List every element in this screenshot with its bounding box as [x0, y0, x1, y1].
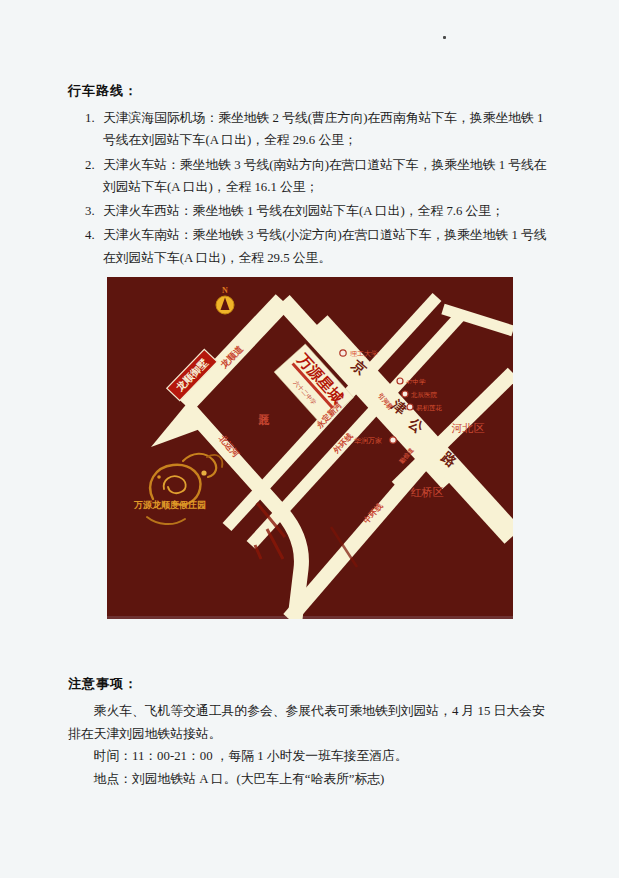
scan-speck-artifact — [443, 36, 446, 39]
route-item-text: 天津滨海国际机场：乘坐地铁 2 号线(曹庄方向)在西南角站下车，换乘坐地铁 1 … — [103, 107, 557, 152]
poi-marker-icon — [402, 391, 408, 397]
poi-label: 易初莲花 — [416, 404, 443, 412]
route-section-title: 行车路线： — [68, 82, 559, 100]
notice-section-title: 注意事项： — [68, 675, 559, 693]
compass-n-label: N — [222, 286, 228, 295]
route-item: 2. 天津火车站：乘坐地铁 3 号线(南站方向)在营口道站下车，换乘坐地铁 1 … — [68, 154, 557, 199]
route-list: 1. 天津滨海国际机场：乘坐地铁 2 号线(曹庄方向)在西南角站下车，换乘坐地铁… — [68, 107, 557, 269]
poi-marker-icon — [407, 404, 413, 410]
map-scan-edge — [107, 616, 513, 619]
route-item-text: 天津火车站：乘坐地铁 3 号线(南站方向)在营口道站下车，换乘坐地铁 1 号线在… — [103, 154, 557, 199]
route-item-number: 4. — [85, 224, 103, 269]
poi-marker-icon — [397, 378, 403, 384]
poi-label: 华润万家 — [354, 437, 382, 445]
poi-marker-icon — [390, 437, 396, 443]
notice-paragraph: 乘火车、飞机等交通工具的参会、参展代表可乘地铁到刘园站，4 月 15 日大会安排… — [68, 700, 557, 745]
route-item: 3. 天津火车西站：乘坐地铁 1 号线在刘园站下车(A 口出)，全程 7.6 公… — [68, 200, 557, 222]
location-map-image: N 万源星城 六十二中学 龙顺御墅 龙顺道 北运河 永定新河 外环线 中环线 — [107, 277, 513, 619]
route-item-number: 3. — [85, 200, 103, 222]
poi-marker-icon — [340, 350, 346, 356]
poi-label: 北辰医院 — [411, 391, 438, 399]
poi-label: 47中学 — [406, 378, 426, 385]
district-label-hongqiao: 红桥区 — [411, 486, 444, 498]
poi-label: 理工大学 — [350, 350, 378, 358]
route-item: 1. 天津滨海国际机场：乘坐地铁 2 号线(曹庄方向)在西南角站下车，换乘坐地铁… — [68, 107, 557, 152]
route-item: 4. 天津火车南站：乘坐地铁 3 号线(小淀方向)在营口道站下车，换乘坐地铁 1… — [68, 224, 557, 269]
route-item-text: 天津火车南站：乘坐地铁 3 号线(小淀方向)在营口道站下车，换乘坐地铁 1 号线… — [103, 224, 557, 269]
resort-label: 万源龙顺度假庄园 — [133, 500, 206, 510]
route-item-number: 1. — [85, 107, 103, 152]
route-item-number: 2. — [85, 154, 103, 199]
notice-section: 注意事项： 乘火车、飞机等交通工具的参会、参展代表可乘地铁到刘园站，4 月 15… — [68, 675, 559, 790]
notice-paragraph: 地点：刘园地铁站 A 口。(大巴车上有“哈表所”标志) — [68, 768, 557, 791]
document-page: 行车路线： 1. 天津滨海国际机场：乘坐地铁 2 号线(曹庄方向)在西南角站下车… — [0, 0, 619, 790]
district-label-hebei: 河北区 — [452, 422, 485, 434]
route-item-text: 天津火车西站：乘坐地铁 1 号线在刘园站下车(A 口出)，全程 7.6 公里； — [103, 200, 557, 222]
notice-paragraph: 时间：11：00-21：00 ，每隔 1 小时发一班车接至酒店。 — [68, 745, 557, 768]
poi-school47: 47中学 — [397, 378, 426, 385]
